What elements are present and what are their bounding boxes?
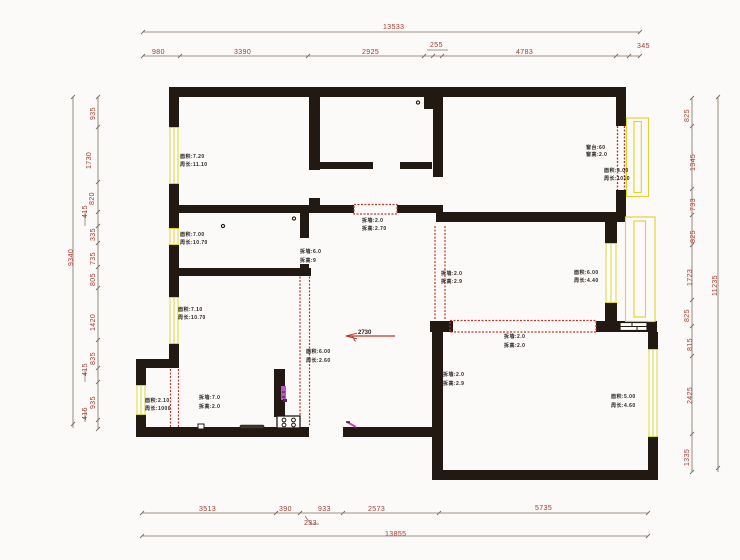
svg-text:拆高:9: 拆高:9 <box>300 257 316 264</box>
svg-text:拆高:2.9: 拆高:2.9 <box>443 380 464 387</box>
svg-text:2730: 2730 <box>358 330 372 336</box>
svg-text:933: 933 <box>318 506 331 513</box>
svg-text:1730: 1730 <box>86 152 93 169</box>
svg-text:335: 335 <box>90 228 97 241</box>
svg-text:拆墙:2.0: 拆墙:2.0 <box>504 333 525 340</box>
svg-text:825: 825 <box>684 109 691 122</box>
svg-text:拆墙:6.0: 拆墙:6.0 <box>300 248 321 255</box>
svg-text:5735: 5735 <box>535 505 552 512</box>
svg-text:2925: 2925 <box>362 49 379 56</box>
svg-text:1345: 1345 <box>690 154 697 171</box>
svg-text:733: 733 <box>690 198 697 211</box>
svg-text:805: 805 <box>90 273 97 286</box>
svg-text:拆高:2.0: 拆高:2.0 <box>504 342 525 349</box>
svg-text:拆墙:2.0: 拆墙:2.0 <box>362 217 383 224</box>
svg-text:拆墙:2.0: 拆墙:2.0 <box>443 371 464 378</box>
svg-text:拆高:2.9: 拆高:2.9 <box>441 278 462 285</box>
svg-text:周长:10.70: 周长:10.70 <box>178 314 206 321</box>
svg-text:390: 390 <box>279 506 292 513</box>
svg-text:周长:11.10: 周长:11.10 <box>180 161 208 168</box>
svg-text:2573: 2573 <box>368 506 385 513</box>
svg-text:周长:10.70: 周长:10.70 <box>180 239 208 246</box>
svg-text:255: 255 <box>430 42 443 49</box>
svg-text:拆墙:7.0: 拆墙:7.0 <box>199 394 220 401</box>
svg-text:935: 935 <box>90 107 97 120</box>
svg-text:980: 980 <box>152 49 165 56</box>
svg-text:3390: 3390 <box>234 49 251 56</box>
svg-text:窗高:2.0: 窗高:2.0 <box>586 151 607 158</box>
svg-text:拆高:2.0: 拆高:2.0 <box>199 403 220 410</box>
svg-text:面积:7.20: 面积:7.20 <box>180 153 205 160</box>
svg-text:233: 233 <box>304 520 317 527</box>
svg-text:面积:6.00: 面积:6.00 <box>306 348 331 355</box>
svg-text:窗台:60: 窗台:60 <box>586 144 605 151</box>
svg-text:825: 825 <box>690 230 697 243</box>
svg-text:415: 415 <box>82 205 89 218</box>
svg-text:825: 825 <box>684 309 691 322</box>
svg-text:面积:7.00: 面积:7.00 <box>180 231 205 238</box>
svg-text:1335: 1335 <box>684 449 691 466</box>
svg-text:9340: 9340 <box>68 249 75 266</box>
svg-text:2425: 2425 <box>687 387 694 404</box>
svg-text:3513: 3513 <box>199 506 216 513</box>
svg-text:13533: 13533 <box>383 24 404 31</box>
svg-text:415: 415 <box>82 363 89 376</box>
svg-text:4783: 4783 <box>516 49 533 56</box>
svg-text:11235: 11235 <box>712 275 719 296</box>
svg-text:面积:5.00: 面积:5.00 <box>611 393 636 400</box>
svg-text:345: 345 <box>637 43 650 50</box>
svg-text:拆墙:2.0: 拆墙:2.0 <box>441 270 462 277</box>
svg-text:面积:6.00: 面积:6.00 <box>574 269 599 276</box>
svg-text:13855: 13855 <box>385 531 406 538</box>
svg-text:835: 835 <box>90 352 97 365</box>
svg-text:周长:4.60: 周长:4.60 <box>611 402 636 409</box>
svg-text:周长:2.60: 周长:2.60 <box>306 357 331 364</box>
svg-text:1420: 1420 <box>90 314 97 331</box>
svg-text:面积:2.10: 面积:2.10 <box>145 397 170 404</box>
svg-text:周长:1010: 周长:1010 <box>604 175 630 182</box>
svg-text:820: 820 <box>89 192 96 205</box>
svg-text:面积:4.00: 面积:4.00 <box>604 167 629 174</box>
svg-text:面积:7.10: 面积:7.10 <box>178 306 203 313</box>
svg-text:735: 735 <box>90 252 97 265</box>
svg-text:1723: 1723 <box>687 269 694 286</box>
svg-text:拆高:2.70: 拆高:2.70 <box>362 225 387 232</box>
svg-text:815: 815 <box>687 338 694 351</box>
svg-text:周长:1000: 周长:1000 <box>145 405 171 412</box>
svg-text:935: 935 <box>90 396 97 409</box>
svg-text:周长:4.40: 周长:4.40 <box>574 277 599 284</box>
svg-text:415: 415 <box>82 407 89 420</box>
